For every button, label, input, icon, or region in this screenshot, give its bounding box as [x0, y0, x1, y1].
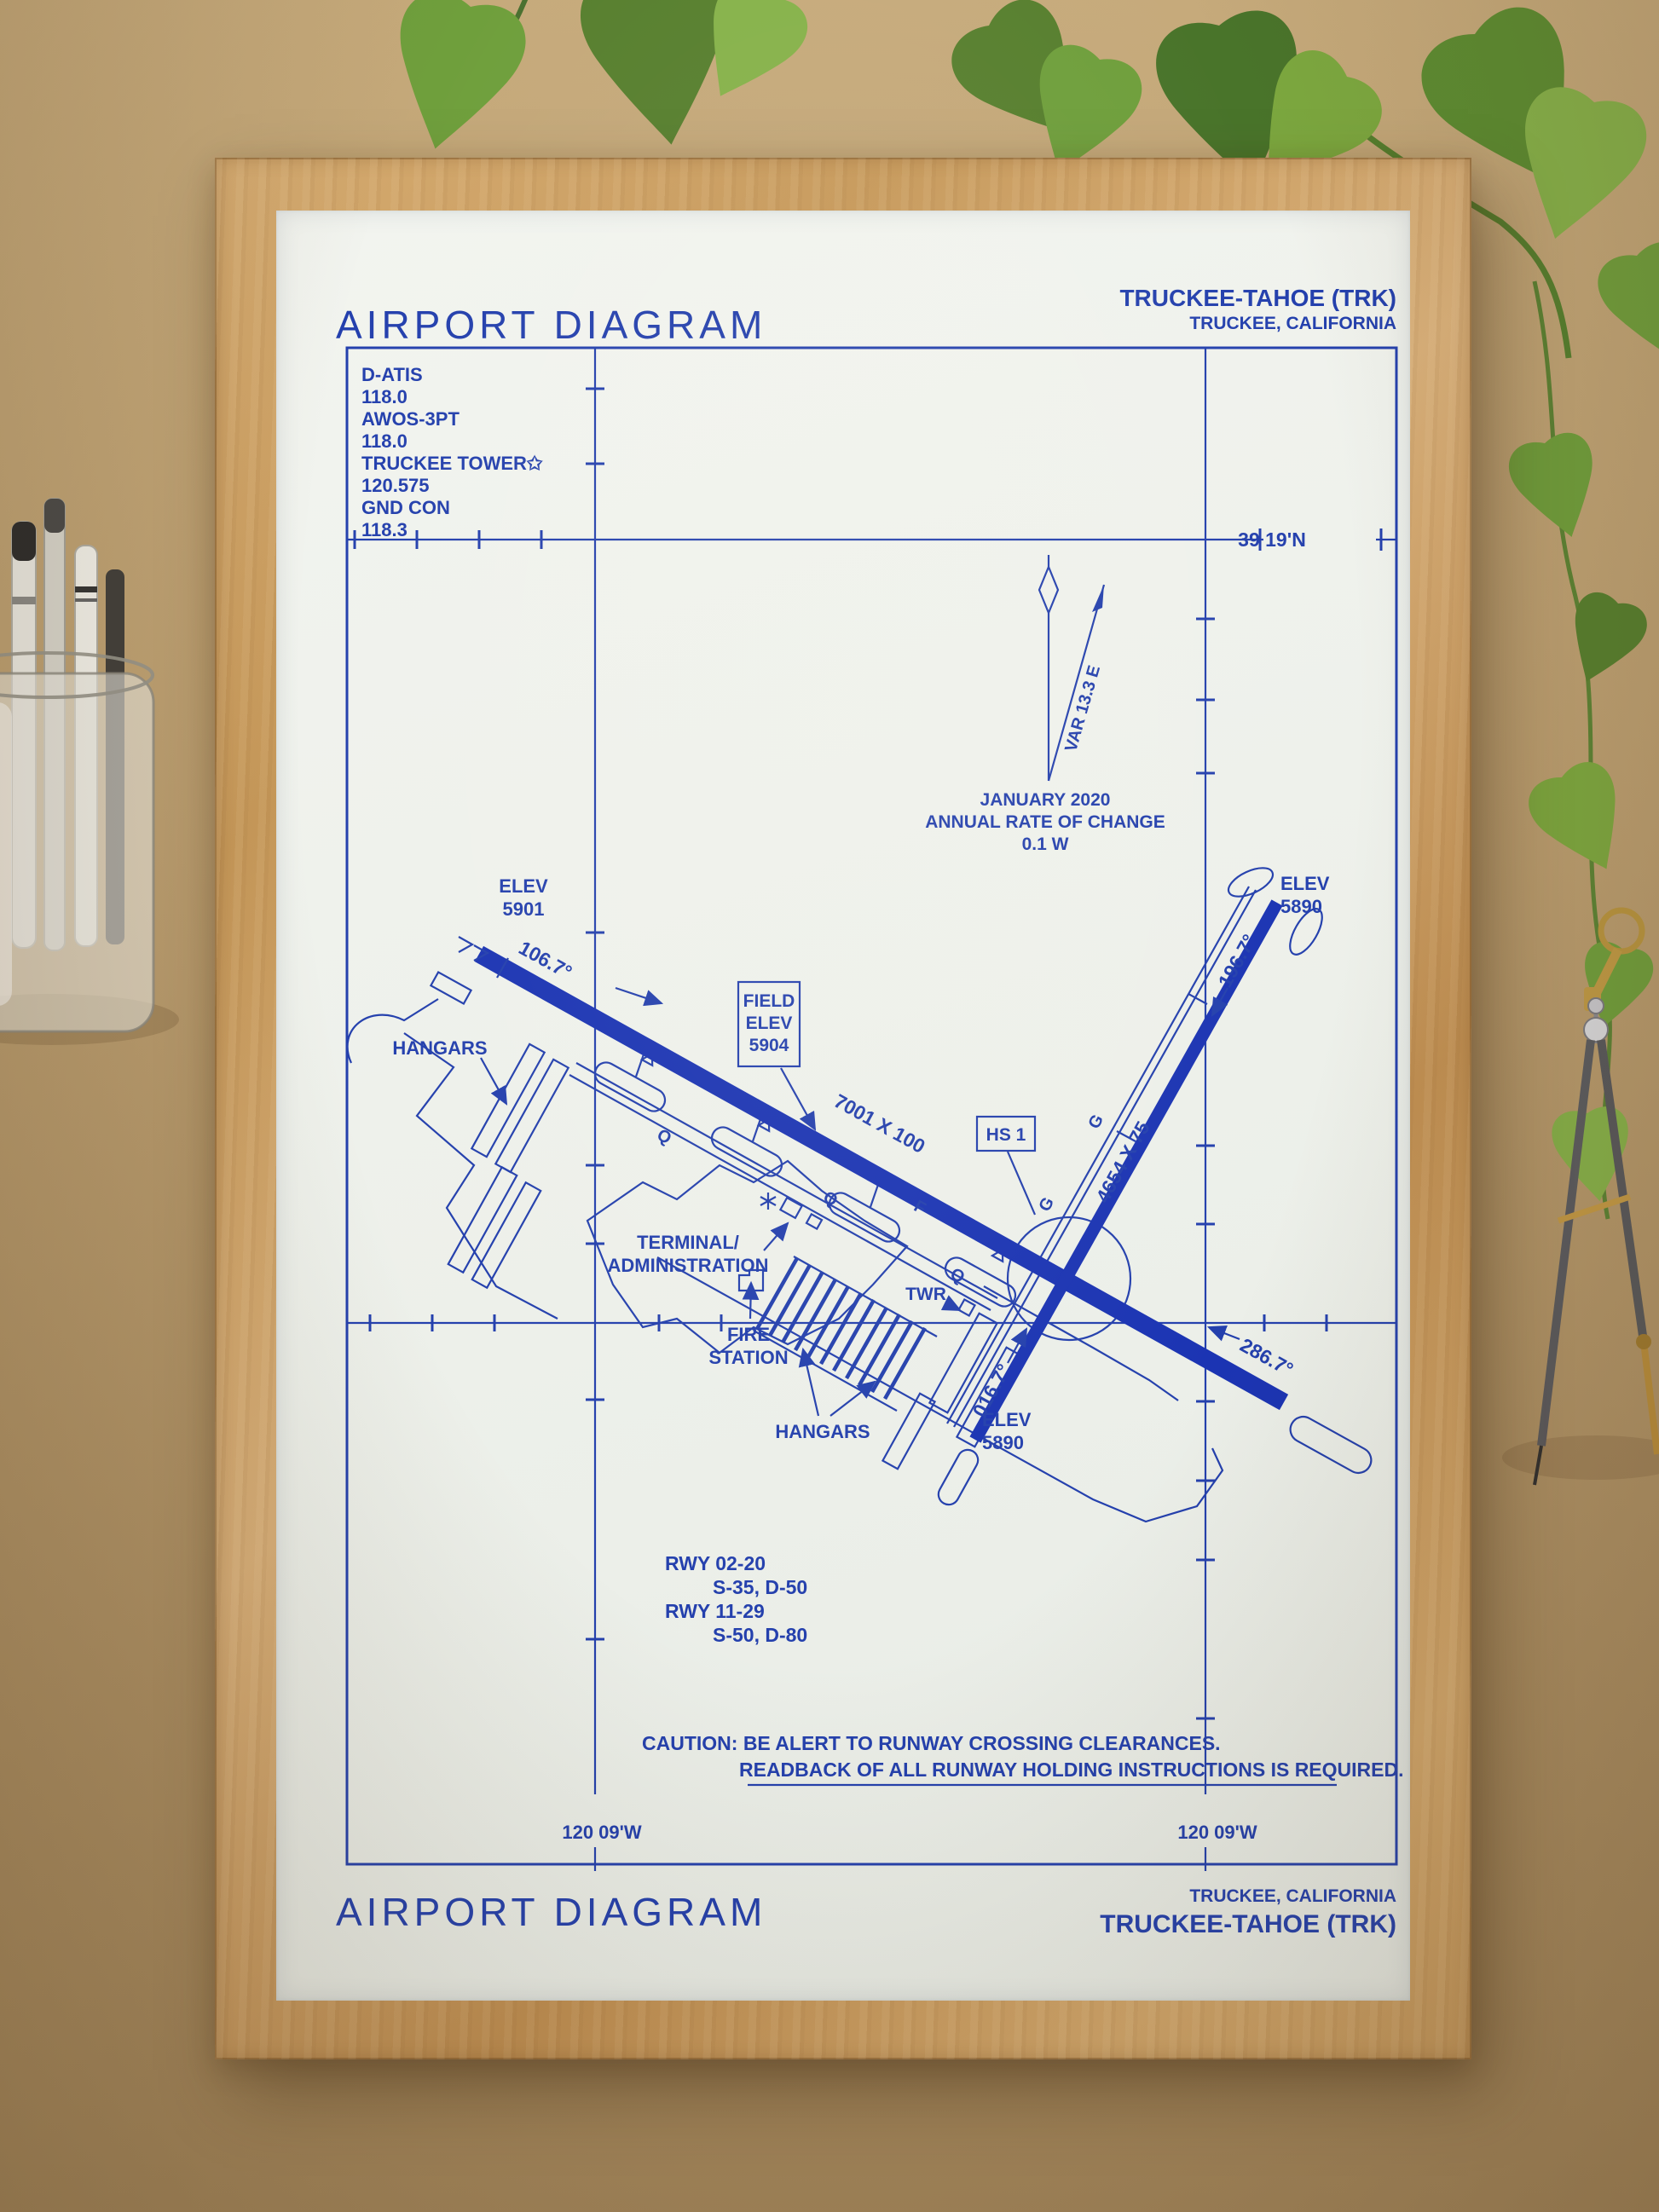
airport-name: TRUCKEE-TAHOE (TRK) [1119, 285, 1396, 311]
hangars-nw-arrow [481, 1058, 506, 1104]
hangar-building [882, 1394, 934, 1469]
terminal-building [780, 1198, 801, 1218]
plant-vine-right [1503, 281, 1657, 1219]
runway-end-pad [1286, 1412, 1376, 1478]
runway-data-line: RWY 02-20 [665, 1552, 766, 1574]
taxiway-label: Q [947, 1264, 968, 1287]
helipad-symbol-icon [760, 1193, 776, 1210]
airport-diagram-chart: AIRPORT DIAGRAM TRUCKEE-TAHOE (TRK) TRUC… [276, 211, 1410, 2001]
compass-knob [1588, 998, 1604, 1014]
runway-data-line: S-50, D-80 [713, 1624, 807, 1646]
pen-band [75, 598, 97, 602]
runup-pad [591, 1059, 668, 1115]
taxiway-label: Q [654, 1125, 674, 1148]
runway-data-block: RWY 02-20 S-35, D-50 RWY 11-29 S-50, D-8… [665, 1552, 807, 1646]
compass-shadow [1502, 1435, 1659, 1480]
compass-collar [1636, 1334, 1651, 1349]
fire-station-label: STATION [708, 1347, 788, 1368]
longitude-label-left: 120 09'W [562, 1822, 642, 1843]
rwy0220-taxiway-edge [947, 887, 1249, 1424]
hangar-building [472, 1182, 541, 1287]
leaf-icon [1503, 427, 1612, 548]
plant-top-center [374, 0, 817, 164]
graticule-ticks [355, 389, 1381, 1718]
buildings [431, 972, 1024, 1469]
longitude-label-right: 120 09'W [1177, 1822, 1257, 1843]
field-elev-line: FIELD [743, 991, 795, 1011]
rwy11-heading-arrow [616, 988, 662, 1003]
west-ramp-outline [404, 1033, 558, 1319]
comm-line: 120.575 [361, 475, 430, 496]
comm-line: D-ATIS [361, 364, 423, 385]
variation-date: JANUARY 2020 [980, 790, 1111, 810]
caution-line: READBACK OF ALL RUNWAY HOLDING INSTRUCTI… [739, 1759, 1403, 1781]
rwy11-elev-label: ELEV [499, 875, 548, 897]
leaf-icon [1520, 754, 1645, 888]
page-title: AIRPORT DIAGRAM [336, 303, 766, 347]
comm-line: 118.3 [361, 519, 408, 540]
latitude-label: 39 19'N [1238, 528, 1306, 551]
t-hangar-stripes [757, 1258, 925, 1399]
airport-diagram-print: AIRPORT DIAGRAM TRUCKEE-TAHOE (TRK) TRUC… [276, 211, 1410, 2001]
pen-band [12, 597, 36, 604]
vine-stem [1535, 281, 1610, 1219]
rwy20-elev-label: ELEV [1280, 873, 1330, 894]
footer-title: AIRPORT DIAGRAM [336, 1890, 766, 1934]
taxiway-label: G [1084, 1112, 1107, 1132]
compass-leg [1601, 1040, 1644, 1342]
variation-rate-value: 0.1 W [1022, 835, 1069, 854]
comm-line: TRUCKEE TOWER✩ [361, 453, 544, 474]
true-north-arrowhead [1039, 567, 1058, 613]
rwy20-elev-value: 5890 [1280, 896, 1322, 917]
runway-11-29 [479, 954, 1284, 1402]
hangars-nw-label: HANGARS [392, 1037, 487, 1059]
field-elev-line: ELEV [746, 1014, 793, 1033]
control-tower-building [958, 1299, 974, 1315]
pen-cap [12, 522, 36, 561]
comm-line: 118.0 [361, 430, 408, 452]
comm-line: 118.0 [361, 386, 408, 407]
picture-frame: AIRPORT DIAGRAM TRUCKEE-TAHOE (TRK) TRUC… [215, 158, 1471, 2059]
comm-line: AWOS-3PT [361, 408, 460, 430]
runways [459, 903, 1284, 1440]
pen-cup [0, 499, 179, 1045]
compass-lead-holder [1644, 1342, 1657, 1454]
t-hangar-rail [754, 1331, 897, 1411]
runup-connectors [636, 1049, 880, 1207]
caution-line: CAUTION: BE ALERT TO RUNWAY CROSSING CLE… [642, 1732, 1221, 1754]
rwy29-heading-arrow [1209, 1327, 1240, 1339]
drafting-compass [1502, 998, 1659, 1485]
tower-label: TWR [905, 1285, 946, 1304]
key-ring [1601, 910, 1642, 951]
photo-scene: AIRPORT DIAGRAM TRUCKEE-TAHOE (TRK) TRUC… [0, 0, 1659, 2212]
rwy11-elev-value: 5901 [503, 898, 545, 920]
variation-rate-label: ANNUAL RATE OF CHANGE [925, 812, 1165, 832]
fire-station-arrow [750, 1283, 751, 1319]
tower-arrow [946, 1303, 960, 1310]
runway-data-line: RWY 11-29 [665, 1600, 765, 1622]
footer-city: TRUCKEE, CALIFORNIA [1189, 1886, 1396, 1906]
hot-spot-label: HS 1 [986, 1125, 1026, 1145]
hangars-s-label: HANGARS [775, 1421, 870, 1442]
comm-box: D-ATIS 118.0 AWOS-3PT 118.0 TRUCKEE TOWE… [361, 364, 544, 540]
hot-spot-box: HS 1 [977, 1117, 1035, 1215]
hangar-building [448, 1167, 517, 1272]
comm-line: GND CON [361, 497, 450, 518]
pen-band [75, 586, 97, 592]
rwy20-heading: 196.7° [1213, 931, 1260, 991]
rwy02-elev-label: ELEV [982, 1409, 1032, 1430]
hot-spot-leader [1008, 1152, 1035, 1215]
field-elev-line: 5904 [749, 1036, 789, 1055]
terminal-building [806, 1214, 822, 1228]
rwy1129-dimensions: 7001 X 100 [830, 1089, 929, 1158]
hangars-s-arrow [803, 1349, 818, 1416]
leaf-icon [1553, 586, 1654, 696]
rwy0220-taxiway-edge [954, 890, 1256, 1427]
terminal-label: TERMINAL/ [637, 1232, 739, 1253]
caution-note: CAUTION: BE ALERT TO RUNWAY CROSSING CLE… [642, 1732, 1403, 1785]
terminal-arrow [764, 1223, 788, 1250]
north-arrow: VAR 13.3 E JANUARY 2020 ANNUAL RATE OF C… [925, 555, 1165, 854]
glass-cup [0, 673, 153, 1031]
glass-highlight [0, 702, 12, 1006]
compass-leg-steel [1541, 1040, 1591, 1446]
terminal-label: ADMINISTRATION [607, 1255, 768, 1276]
runup-pad [708, 1123, 785, 1180]
fire-station-label: FIRE [727, 1324, 770, 1345]
leaf-icon [374, 0, 534, 164]
compass-hinge [1584, 1018, 1608, 1042]
leaf-icon [1590, 234, 1659, 376]
airport-city: TRUCKEE, CALIFORNIA [1189, 314, 1396, 333]
footer-airport: TRUCKEE-TAHOE (TRK) [1100, 1910, 1396, 1938]
magnetic-north-arrowhead [1092, 585, 1104, 612]
hammerhead-loop [1224, 862, 1277, 902]
runway-overrun-pad [935, 1447, 982, 1509]
rwy02-elev-value: 5890 [982, 1432, 1024, 1453]
taxiway-label: G [1035, 1194, 1058, 1215]
pen-cap [44, 499, 65, 533]
runway-data-line: S-35, D-50 [713, 1576, 807, 1598]
